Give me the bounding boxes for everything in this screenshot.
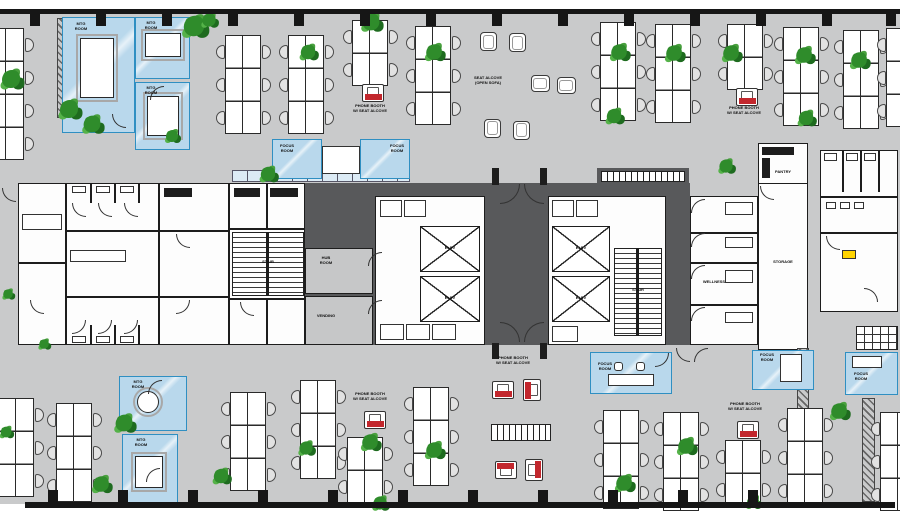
focus-chair [636, 362, 645, 371]
phone-booth-icon [364, 411, 386, 429]
plant-icon [301, 45, 315, 59]
label-phone-booth: PHONE BOOTH W/ SEAT ALCOVE [714, 402, 776, 412]
focus-desk [780, 354, 802, 382]
label-elev: ELEV [566, 246, 596, 251]
door-jamb [492, 168, 499, 185]
lounge-chair-icon [513, 121, 530, 140]
stall-wall [138, 183, 140, 203]
label-seat-alcove: SEAT ALCOVE (OPEN SOFA) [460, 76, 516, 86]
focus-desk [608, 374, 654, 386]
wall [266, 183, 268, 228]
column-marker [118, 490, 128, 502]
plant-icon [666, 45, 682, 61]
column-marker [822, 14, 832, 26]
plant-icon [678, 438, 694, 454]
label-stair: STAIR [620, 288, 656, 293]
desk-cluster [600, 22, 636, 121]
floor-plan: MTG ROOM MTG ROOM MTG ROOM MTG ROOM MTG … [0, 0, 900, 530]
label-mtg-room: MTG ROOM [138, 21, 164, 31]
plant-icon [3, 289, 13, 299]
phone-booth-icon [525, 459, 543, 481]
stall-wall [842, 150, 844, 192]
plant-icon [60, 100, 78, 118]
lounge-chair-icon [480, 32, 497, 51]
desk-cluster [225, 35, 261, 134]
utility-cell [432, 324, 456, 340]
desk-cluster [0, 28, 24, 160]
plant-icon [611, 44, 627, 60]
plant-icon [799, 111, 813, 125]
column-marker [748, 490, 758, 502]
label-focus-room: FOCUS ROOM [384, 144, 410, 154]
plant-icon [93, 476, 109, 492]
right-restroom-block [820, 150, 898, 312]
counter-dark [234, 188, 260, 197]
desk-cluster [783, 27, 819, 126]
toilet-fixture [120, 336, 134, 343]
toilet-fixture [72, 186, 86, 193]
sink-fixture [826, 202, 836, 209]
phone-booth-icon [492, 381, 514, 399]
label-focus-room: FOCUS ROOM [592, 362, 618, 372]
column-marker [30, 14, 40, 26]
toilet-fixture [120, 186, 134, 193]
column-marker [468, 490, 478, 502]
column-marker [258, 490, 268, 502]
stall-wall [878, 150, 880, 192]
label-vending: VENDING [310, 314, 342, 319]
wall [820, 196, 898, 198]
stall-wall [90, 183, 92, 203]
pantry-counter-dark [762, 158, 770, 178]
door-jamb [540, 168, 547, 185]
round-table [137, 391, 159, 413]
phone-booth-icon [495, 461, 517, 479]
label-elev: ELEV [435, 296, 465, 301]
label-elev: ELEV [566, 296, 596, 301]
phone-booth-icon [362, 84, 384, 102]
label-focus-room: FOCUS ROOM [274, 144, 300, 154]
desk-cluster [415, 26, 451, 125]
wall [65, 183, 67, 345]
column-marker [886, 14, 896, 26]
desk-cluster [843, 30, 879, 129]
wall [158, 183, 160, 345]
wall [158, 296, 228, 298]
plant-icon [116, 415, 133, 432]
column-marker [188, 490, 198, 502]
label-hub-room: HUB ROOM [312, 256, 340, 266]
shared-desk [322, 146, 360, 174]
phone-booth-icon [737, 421, 759, 439]
plant-icon [831, 403, 847, 419]
desk-cluster [56, 403, 92, 502]
counter-dark [164, 188, 192, 197]
wall [18, 262, 65, 264]
stall-wall [114, 183, 116, 203]
label-phone-booth: PHONE BOOTH W/ SEAT ALCOVE [342, 104, 398, 114]
wall [65, 296, 158, 298]
yellow-tag [842, 250, 856, 259]
label-phone-booth: PHONE BOOTH W/ SEAT ALCOVE [342, 392, 398, 402]
desk-cluster [0, 398, 34, 497]
column-marker [608, 490, 618, 502]
label-mtg-room: MTG ROOM [123, 380, 153, 390]
stall-wall [860, 150, 862, 192]
wall [690, 304, 758, 306]
stall-wall [114, 325, 116, 345]
wall [228, 183, 230, 345]
lounge-chair-icon [484, 119, 501, 138]
stall-wall [90, 325, 92, 345]
stall-wall [138, 325, 140, 345]
couch-fixture [725, 237, 753, 248]
column-marker [426, 14, 436, 26]
utility-cell [406, 324, 430, 340]
conference-table [145, 33, 181, 57]
wall [690, 262, 758, 264]
label-wellness: WELLNESS [694, 280, 734, 285]
sink-fixture [840, 202, 850, 209]
wall [228, 228, 305, 230]
sink-counter [70, 250, 126, 262]
toilet-fixture [864, 153, 876, 161]
utility-cell [380, 324, 404, 340]
column-marker [96, 14, 106, 26]
column-marker [492, 14, 502, 26]
focus-desk [852, 356, 882, 368]
column-marker [162, 14, 172, 26]
desk-cluster [787, 408, 823, 507]
room-storage [758, 183, 808, 350]
column-marker [294, 14, 304, 26]
utility-cell [552, 200, 574, 217]
couch-fixture [725, 202, 753, 215]
plant-icon [261, 167, 275, 181]
desk-cluster [230, 392, 266, 491]
locker-grid [856, 326, 898, 350]
label-stair: STAIR [250, 260, 286, 265]
wall [158, 230, 228, 232]
wall-bottom [25, 502, 895, 508]
plant-icon [299, 441, 312, 454]
toilet-fixture [846, 153, 858, 161]
sink-fixture [854, 202, 864, 209]
room-vending [305, 296, 373, 345]
lounge-chair-icon [531, 75, 550, 92]
label-mtg-room: MTG ROOM [138, 86, 164, 96]
label-elev: ELEV [435, 246, 465, 251]
label-mtg-room: MTG ROOM [66, 22, 96, 32]
wall [266, 298, 268, 345]
desk-cluster [413, 387, 449, 486]
wall [65, 230, 158, 232]
label-storage: STORAGE [765, 260, 801, 265]
lounge-chair-icon [557, 77, 576, 94]
column-marker [678, 490, 688, 502]
utility-cell [576, 200, 598, 217]
desk-cluster [300, 380, 336, 479]
utility-cell [404, 200, 426, 217]
lounge-chair-icon [509, 33, 526, 52]
column-marker [690, 14, 700, 26]
lockers-strip [491, 424, 551, 441]
label-phone-booth: PHONE BOOTH W/ SEAT ALCOVE [716, 106, 772, 116]
column-marker [48, 490, 58, 502]
label-pantry: PANTRY [761, 170, 805, 175]
plant-icon [39, 339, 49, 349]
column-marker [398, 490, 408, 502]
plant-icon [202, 13, 215, 26]
plant-icon [607, 109, 621, 123]
utility-cell [552, 326, 578, 342]
phone-booth-icon [523, 379, 541, 401]
plant-icon [851, 52, 867, 68]
label-phone-booth: PHONE BOOTH W/ SEAT ALCOVE [482, 356, 544, 366]
room-hub [305, 248, 373, 294]
toilet-fixture [96, 336, 110, 343]
desk-cluster [886, 28, 900, 127]
column-marker [328, 490, 338, 502]
plant-icon [723, 45, 739, 61]
plant-icon [616, 475, 632, 491]
kitchen-counter [22, 214, 62, 230]
plant-icon [426, 442, 442, 458]
label-focus-room: FOCUS ROOM [754, 353, 780, 363]
label-mtg-room: MTG ROOM [126, 438, 156, 448]
label-focus-room: FOCUS ROOM [848, 372, 874, 382]
plant-icon [214, 469, 228, 483]
column-marker [538, 490, 548, 502]
toilet-fixture [96, 186, 110, 193]
plant-icon [166, 130, 178, 142]
conference-table [80, 38, 114, 98]
desk-cluster [880, 412, 900, 511]
toilet-fixture [72, 336, 86, 343]
plant-icon [2, 70, 20, 88]
plant-icon [1, 427, 12, 438]
plant-icon [796, 47, 812, 63]
plant-icon [426, 44, 442, 60]
column-marker [228, 14, 238, 26]
column-marker [558, 14, 568, 26]
phone-booth-icon [736, 88, 758, 106]
wall [820, 232, 898, 234]
plant-icon [362, 434, 378, 450]
column-marker [624, 14, 634, 26]
pantry-counter-dark [762, 147, 794, 155]
toilet-fixture [824, 153, 837, 161]
plant-icon [84, 116, 101, 133]
desk-cluster [655, 24, 691, 123]
plant-icon [719, 159, 732, 172]
hatch-wall [862, 398, 875, 502]
column-marker [360, 14, 370, 26]
column-marker [756, 14, 766, 26]
utility-cell [380, 200, 402, 217]
counter-dark [270, 188, 298, 197]
couch-fixture [725, 312, 753, 323]
mail-lockers [601, 171, 685, 182]
plant-icon [184, 16, 204, 36]
